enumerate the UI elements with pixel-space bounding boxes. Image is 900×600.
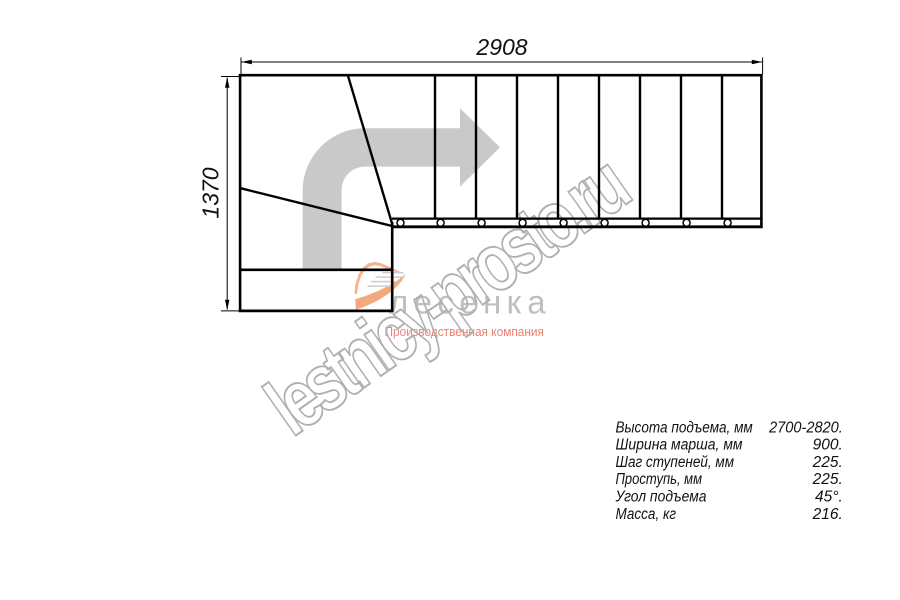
svg-text:2908: 2908: [475, 34, 527, 60]
svg-text:2700-2820.: 2700-2820.: [768, 420, 843, 437]
svg-text:225.: 225.: [812, 471, 843, 488]
svg-text:Масса, кг: Масса, кг: [616, 506, 677, 523]
svg-text:1370: 1370: [198, 167, 224, 218]
svg-text:Проступь, мм: Проступь, мм: [616, 471, 703, 488]
svg-text:225.: 225.: [812, 454, 843, 471]
svg-text:45°.: 45°.: [815, 488, 843, 505]
svg-text:Ширина марша, мм: Ширина марша, мм: [616, 436, 743, 453]
svg-text:900.: 900.: [813, 436, 843, 453]
svg-text:Угол подъема: Угол подъема: [615, 488, 707, 505]
svg-text:Высота подъема, мм: Высота подъема, мм: [616, 420, 754, 437]
svg-text:216.: 216.: [812, 506, 843, 523]
svg-text:Шаг ступеней, мм: Шаг ступеней, мм: [616, 454, 735, 471]
